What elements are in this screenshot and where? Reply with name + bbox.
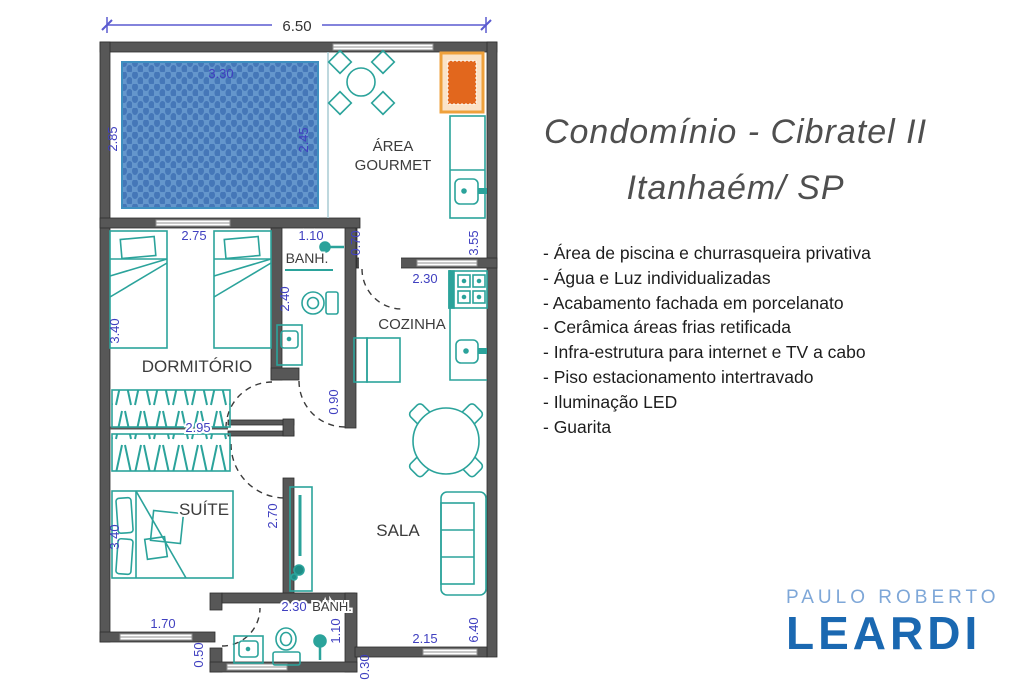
dim-dorm-height: 3.40 [107,318,122,343]
dim-banh1-width: 1.10 [298,228,323,243]
listing-title: Condomínio - Cibratel II Itanhaém/ SP [528,104,943,216]
listing-title-line1: Condomínio - Cibratel II [528,104,943,160]
dim-sala-height: 6.40 [466,617,481,642]
feature-item: - Guarita [543,415,1003,440]
feature-item: - Iluminação LED [543,390,1003,415]
grill-icon [441,53,483,112]
leardi-logo: PAULO ROBERTO LEARDI [786,588,1001,656]
dim-pool-width: 3.30 [208,66,233,81]
room-label-dormitorio: DORMITÓRIO [142,357,253,376]
dim-banh1-height: 2.40 [277,286,292,311]
wardrobe-suite [112,434,230,471]
room-label-banh2: BANH. [312,599,352,614]
dim-suite-width: 1.70 [150,616,175,631]
room-label-suite: SUÍTE [179,500,229,519]
dim-banh1-side: 0.70 [348,230,363,255]
room-label-banh1: BANH. [286,250,329,266]
dim-banh2-height: 1.10 [328,618,343,643]
dim-cozinha-door: 2.30 [412,271,437,286]
feature-item: - Cerâmica áreas frias retificada [543,315,1003,340]
feature-item: - Área de piscina e churrasqueira privat… [543,241,1003,266]
dim-suite-height: 3.40 [107,524,122,549]
wardrobe-dormitorio [112,390,230,427]
sofa-icon [441,492,486,595]
dim-pool-height-left: 2.85 [105,126,120,151]
feature-item: - Água e Luz individualizadas [543,266,1003,291]
dim-total-width: 6.50 [282,18,311,35]
single-bed-2 [214,231,271,348]
dim-wardrobe-width: 2.95 [185,420,210,435]
dining-table-icon [408,402,484,478]
dim-banh2-width: 2.30 [281,599,306,614]
dim-suite-side: 2.70 [265,503,280,528]
dim-gourmet-height: 3.55 [466,230,481,255]
feature-list: - Área de piscina e churrasqueira privat… [543,241,1003,439]
room-label-area-gourmet-2: GOURMET [355,157,432,174]
dim-pool-height-right: 2.45 [296,127,311,152]
gourmet-counter [450,116,487,218]
listing-title-line2: Itanhaém/ SP [528,160,943,216]
room-label-cozinha: COZINHA [378,316,446,333]
room-label-area-gourmet: ÁREA [373,138,414,155]
dim-offset-right: 0.30 [357,654,372,679]
pool [122,62,318,208]
dim-sala-width: 2.15 [412,631,437,646]
dim-hall-width: 0.90 [326,389,341,414]
logo-brand-name: LEARDI [786,610,1001,656]
feature-item: - Acabamento fachada em porcelanato [543,291,1003,316]
banh2-fixtures [234,628,326,665]
feature-item: - Infra-estrutura para internet e TV a c… [543,340,1003,365]
dim-dorm-width: 2.75 [181,228,206,243]
feature-item: - Piso estacionamento intertravado [543,365,1003,390]
room-label-sala: SALA [376,521,420,540]
floor-plan: 6.50 [0,0,520,698]
door-opening [359,257,401,269]
real-estate-flyer: 6.50 [0,0,1024,698]
dim-offset-left: 0.50 [191,642,206,667]
gourmet-table-icon [329,51,395,115]
logo-agent-name: PAULO ROBERTO [786,588,1001,607]
